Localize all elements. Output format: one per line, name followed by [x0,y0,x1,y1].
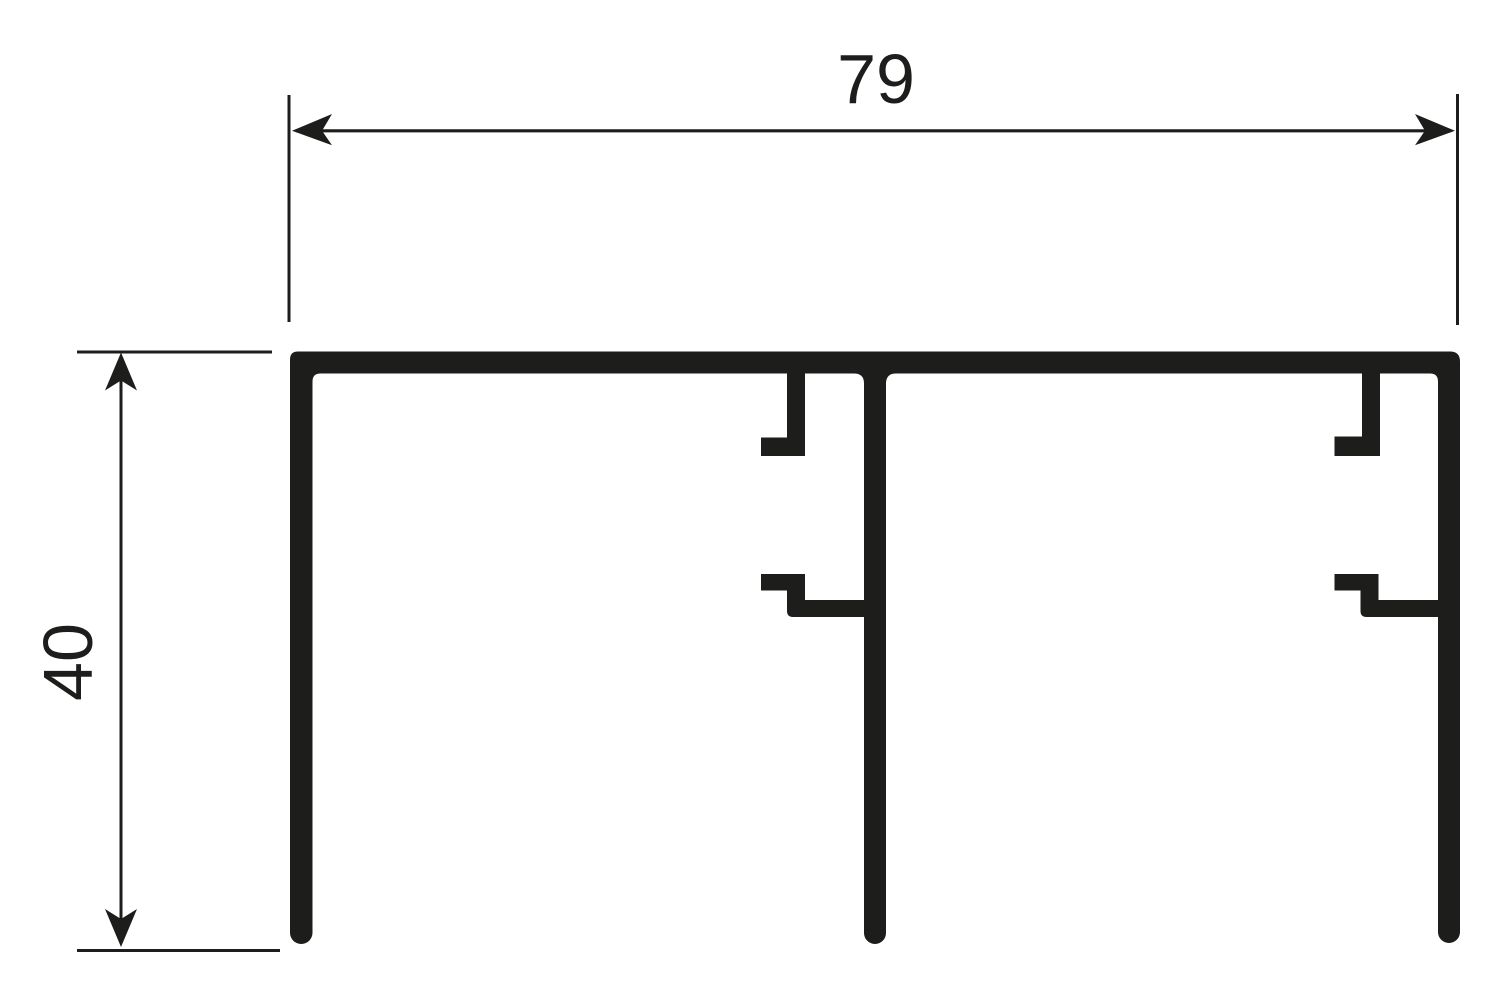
svg-text:40: 40 [29,623,107,701]
svg-text:79: 79 [837,40,915,118]
